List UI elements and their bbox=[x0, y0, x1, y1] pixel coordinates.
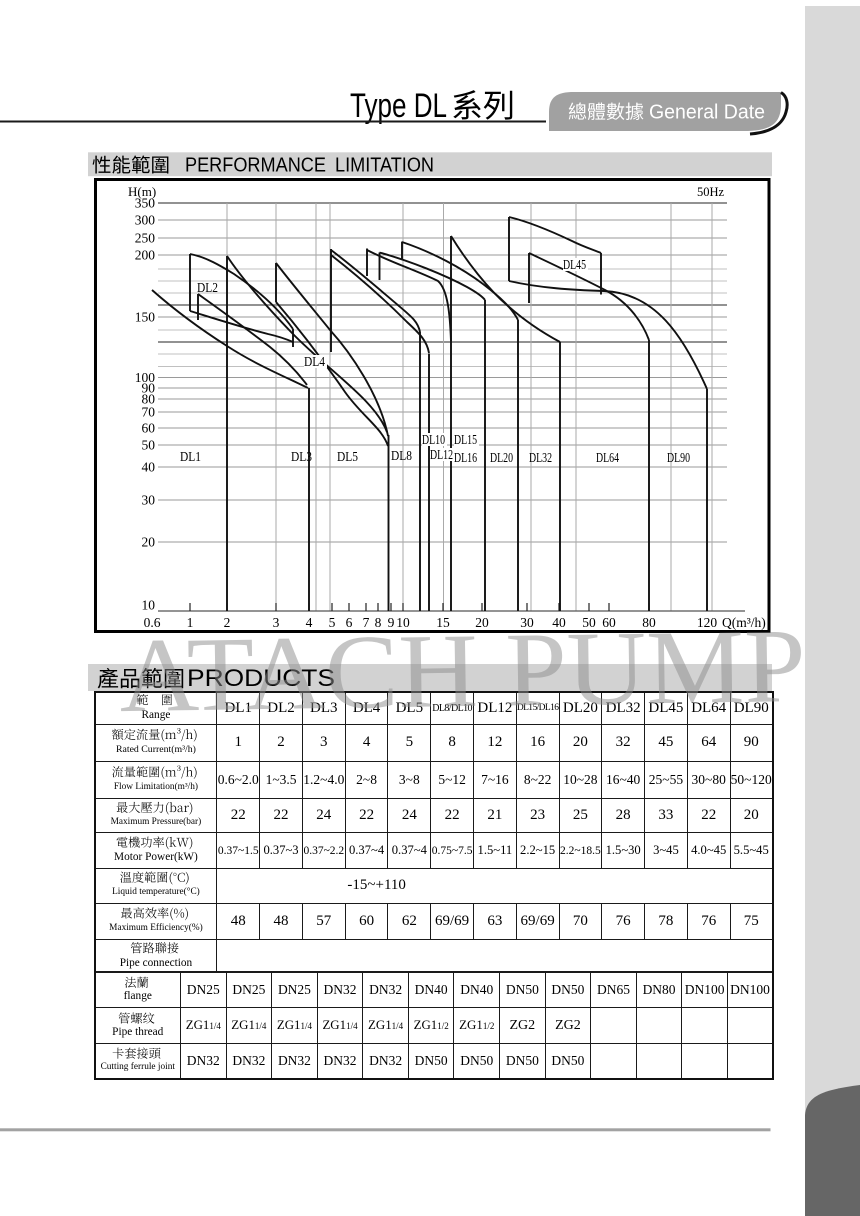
svg-text:Type DL: Type DL bbox=[350, 87, 447, 125]
svg-text:80: 80 bbox=[142, 392, 156, 407]
svg-text:7: 7 bbox=[363, 615, 370, 630]
svg-text:200: 200 bbox=[135, 248, 156, 263]
svg-text:30: 30 bbox=[520, 615, 534, 630]
svg-text:DL1: DL1 bbox=[180, 450, 201, 465]
svg-text:6: 6 bbox=[346, 615, 353, 630]
svg-text:15: 15 bbox=[436, 615, 450, 630]
svg-text:H(m): H(m) bbox=[128, 184, 156, 199]
svg-text:60: 60 bbox=[142, 421, 156, 436]
svg-text:DL16: DL16 bbox=[454, 451, 477, 466]
svg-text:40: 40 bbox=[142, 460, 156, 475]
svg-text:0.6: 0.6 bbox=[144, 615, 161, 630]
svg-text:9: 9 bbox=[388, 615, 395, 630]
svg-text:50: 50 bbox=[142, 438, 156, 453]
svg-text:DL15: DL15 bbox=[454, 433, 477, 448]
svg-text:60: 60 bbox=[602, 615, 616, 630]
svg-text:Q(m³/h): Q(m³/h) bbox=[722, 615, 766, 630]
svg-text:DL20: DL20 bbox=[490, 451, 513, 466]
svg-text:PRODUCTS: PRODUCTS bbox=[187, 665, 335, 692]
svg-text:2: 2 bbox=[224, 615, 231, 630]
svg-text:20: 20 bbox=[475, 615, 489, 630]
svg-text:DL32: DL32 bbox=[529, 451, 552, 466]
svg-text:50: 50 bbox=[582, 615, 596, 630]
svg-text:8: 8 bbox=[375, 615, 382, 630]
svg-text:120: 120 bbox=[697, 615, 718, 630]
svg-text:40: 40 bbox=[552, 615, 566, 630]
svg-text:300: 300 bbox=[135, 213, 156, 228]
svg-text:DL2: DL2 bbox=[197, 281, 218, 296]
svg-text:10: 10 bbox=[396, 615, 410, 630]
svg-text:DL12: DL12 bbox=[430, 448, 453, 463]
svg-text:150: 150 bbox=[135, 310, 156, 325]
svg-text:DL45: DL45 bbox=[563, 258, 586, 273]
svg-text:DL3: DL3 bbox=[291, 450, 312, 465]
svg-text:80: 80 bbox=[642, 615, 656, 630]
svg-text:1: 1 bbox=[187, 615, 194, 630]
svg-text:PERFORMANCE LIMITATION: PERFORMANCE LIMITATION bbox=[185, 155, 434, 177]
svg-text:10: 10 bbox=[142, 598, 156, 613]
svg-text:3: 3 bbox=[273, 615, 280, 630]
svg-text:DL4: DL4 bbox=[304, 355, 325, 370]
svg-text:30: 30 bbox=[142, 493, 156, 508]
svg-text:4: 4 bbox=[306, 615, 313, 630]
svg-text:100: 100 bbox=[135, 370, 156, 385]
svg-text:90: 90 bbox=[142, 381, 156, 396]
svg-text:DL64: DL64 bbox=[596, 451, 619, 466]
svg-text:350: 350 bbox=[135, 196, 156, 211]
svg-text:DL10: DL10 bbox=[422, 433, 445, 448]
svg-text:General Date: General Date bbox=[649, 102, 765, 124]
svg-text:50Hz: 50Hz bbox=[697, 185, 725, 199]
svg-text:20: 20 bbox=[142, 535, 156, 550]
svg-text:DL5: DL5 bbox=[337, 450, 358, 465]
svg-text:70: 70 bbox=[142, 405, 156, 420]
svg-text:DL90: DL90 bbox=[667, 451, 690, 466]
svg-text:DL8: DL8 bbox=[391, 449, 412, 464]
svg-text:5: 5 bbox=[329, 615, 336, 630]
svg-text:250: 250 bbox=[135, 231, 156, 246]
